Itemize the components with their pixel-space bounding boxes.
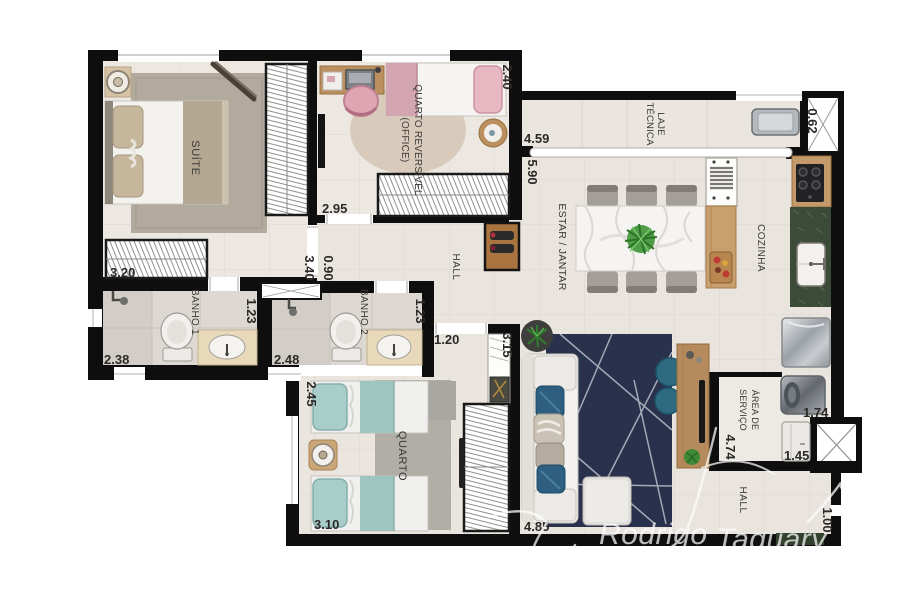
svg-text:2.95: 2.95	[322, 201, 347, 216]
svg-text:SERVIÇO: SERVIÇO	[738, 389, 748, 431]
svg-text:QUARTO: QUARTO	[396, 431, 408, 481]
svg-text:Taquary: Taquary	[716, 523, 828, 556]
svg-text:BANHO 2: BANHO 2	[358, 289, 369, 335]
svg-text:1.20: 1.20	[434, 332, 459, 347]
svg-text:4.74: 4.74	[723, 434, 738, 460]
svg-text:BANHO 1: BANHO 1	[189, 289, 200, 335]
svg-text:ESTAR / JANTAR: ESTAR / JANTAR	[556, 203, 568, 290]
svg-text:HALL: HALL	[737, 486, 748, 513]
svg-text:QUARTO REVERSÍVEL: QUARTO REVERSÍVEL	[412, 84, 425, 196]
svg-text:1.23: 1.23	[244, 298, 259, 323]
svg-text:2.48: 2.48	[274, 352, 299, 367]
svg-text:1.74: 1.74	[803, 405, 829, 420]
svg-text:SUÍTE: SUÍTE	[189, 140, 202, 175]
svg-text:4.59: 4.59	[524, 131, 549, 146]
svg-text:3.20: 3.20	[110, 265, 135, 280]
svg-text:1.45: 1.45	[784, 448, 809, 463]
svg-text:3.15: 3.15	[500, 332, 515, 357]
svg-text:2.40: 2.40	[500, 64, 515, 89]
svg-text:TÉCNICA: TÉCNICA	[644, 102, 655, 146]
svg-text:3.40: 3.40	[302, 255, 317, 280]
svg-text:0.62: 0.62	[805, 108, 820, 133]
svg-text:HALL: HALL	[450, 253, 461, 280]
svg-text:1.23: 1.23	[413, 298, 428, 323]
svg-text:0.90: 0.90	[321, 255, 336, 280]
svg-text:LAJE: LAJE	[655, 112, 666, 136]
svg-text:2.45: 2.45	[304, 381, 319, 406]
svg-text:ÁREA DE: ÁREA DE	[750, 390, 760, 430]
svg-text:(OFFICE): (OFFICE)	[399, 118, 410, 163]
svg-text:5.90: 5.90	[525, 159, 540, 184]
svg-text:Rodrigo: Rodrigo	[599, 518, 708, 551]
svg-text:3.10: 3.10	[314, 517, 339, 532]
svg-text:COZINHA: COZINHA	[755, 224, 766, 272]
svg-text:2.38: 2.38	[104, 352, 129, 367]
